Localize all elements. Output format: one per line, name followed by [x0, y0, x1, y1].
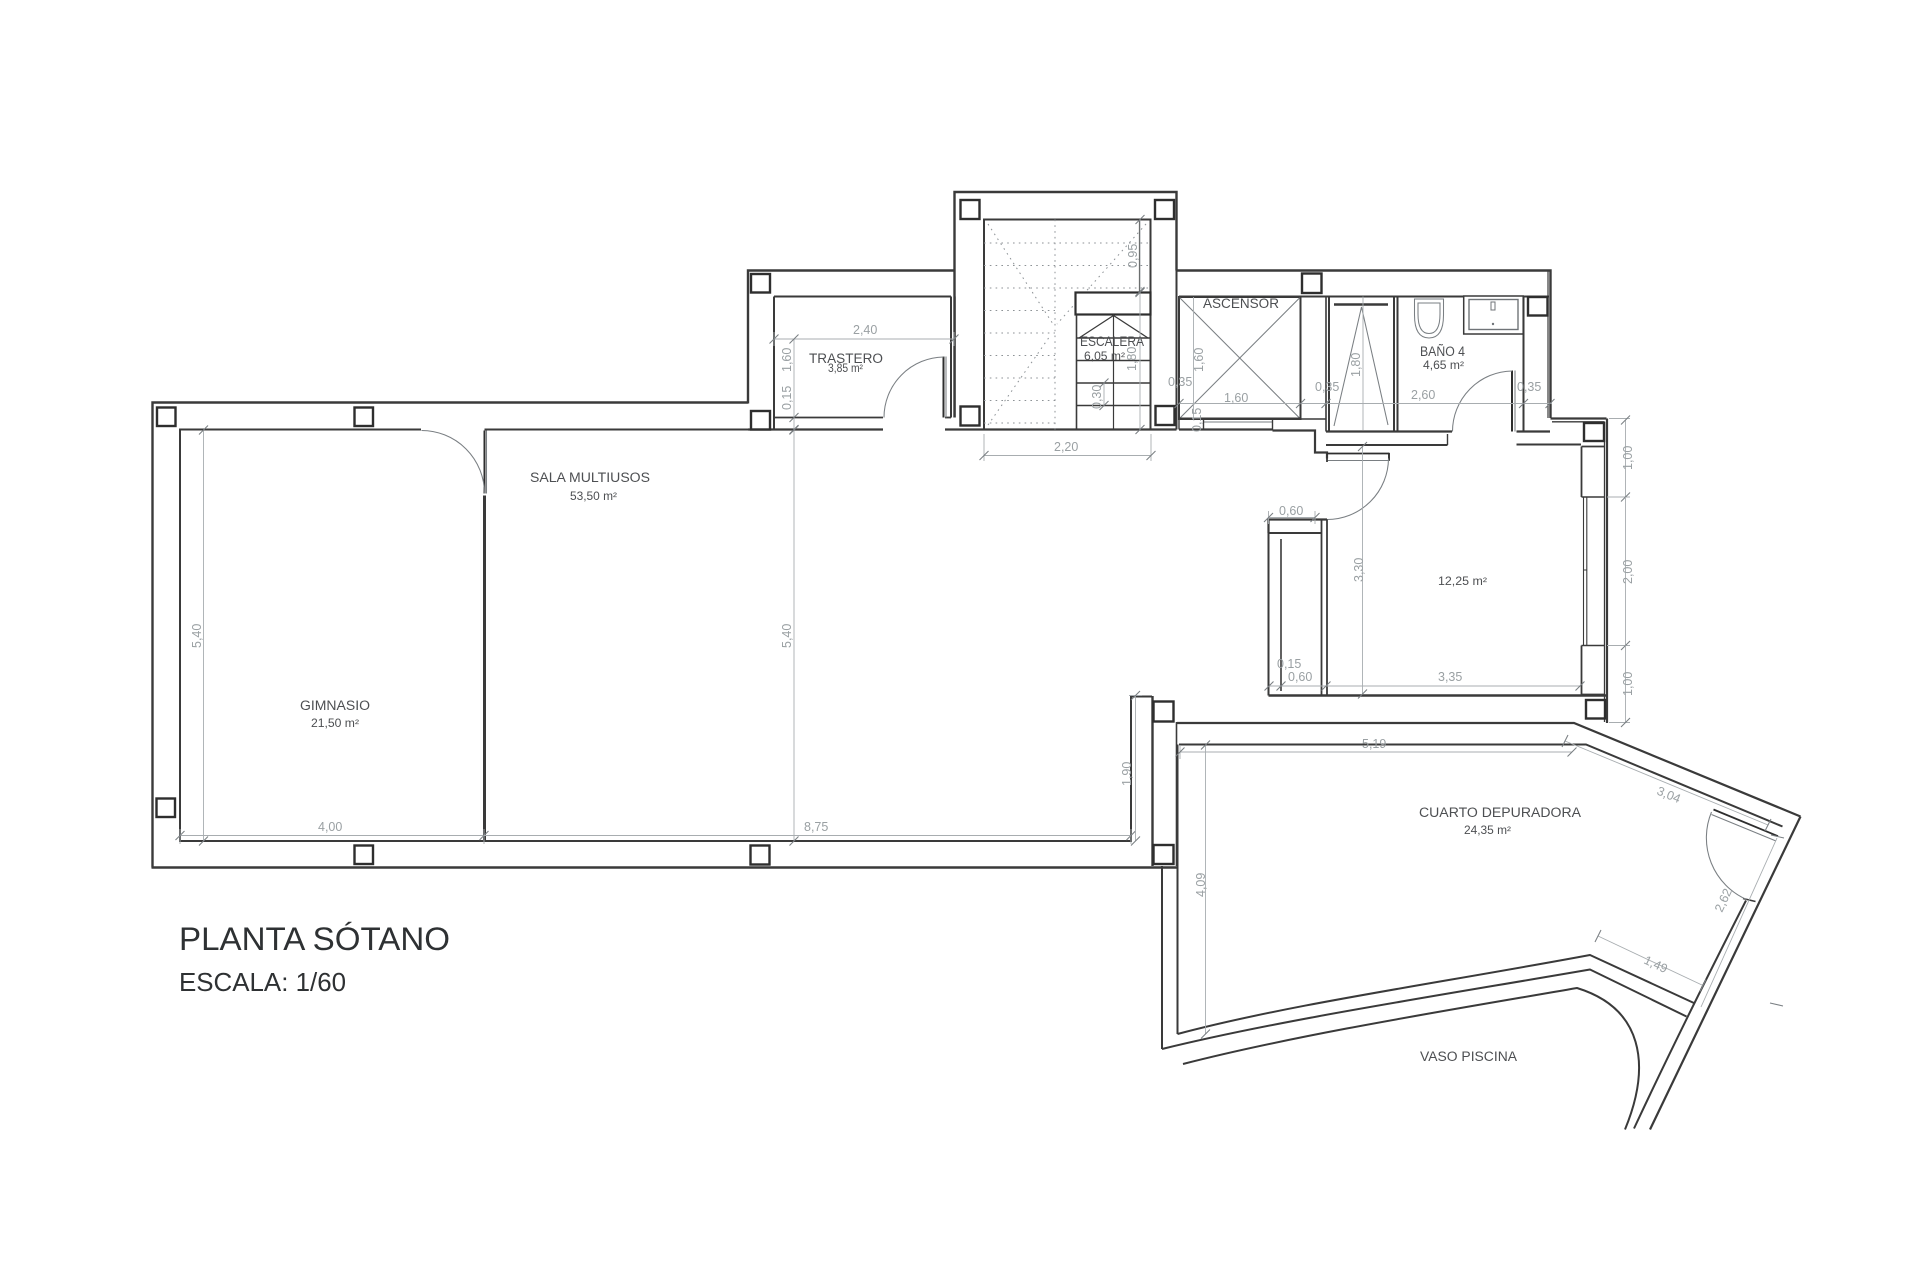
svg-text:SALA MULTIUSOS: SALA MULTIUSOS — [530, 470, 650, 485]
svg-text:2,40: 2,40 — [853, 323, 877, 337]
svg-text:5,40: 5,40 — [190, 624, 204, 648]
svg-text:ESCALA: 1/60: ESCALA: 1/60 — [179, 967, 346, 997]
svg-text:0,35: 0,35 — [1517, 380, 1541, 394]
svg-text:PLANTA SÓTANO: PLANTA SÓTANO — [179, 920, 450, 957]
svg-text:1,80: 1,80 — [1125, 347, 1139, 371]
svg-text:1,80: 1,80 — [1349, 353, 1363, 377]
svg-text:4,65 m²: 4,65 m² — [1423, 360, 1464, 372]
svg-text:1,90: 1,90 — [1120, 762, 1134, 786]
svg-text:8,75: 8,75 — [804, 820, 828, 834]
svg-text:0,35: 0,35 — [1315, 380, 1339, 394]
svg-text:6,05 m²: 6,05 m² — [1084, 351, 1125, 363]
svg-text:0,30: 0,30 — [1090, 385, 1104, 409]
svg-text:53,50 m²: 53,50 m² — [570, 491, 617, 503]
svg-text:5,19: 5,19 — [1362, 737, 1386, 751]
svg-text:4,00: 4,00 — [318, 820, 342, 834]
svg-text:5,40: 5,40 — [780, 624, 794, 648]
svg-text:1,60: 1,60 — [780, 348, 794, 372]
svg-text:GIMNASIO: GIMNASIO — [300, 698, 370, 713]
svg-text:2,20: 2,20 — [1054, 440, 1078, 454]
svg-text:0,15: 0,15 — [1277, 657, 1301, 671]
svg-text:1,60: 1,60 — [1192, 348, 1206, 372]
svg-text:VASO PISCINA: VASO PISCINA — [1420, 1049, 1517, 1064]
svg-text:0,15: 0,15 — [1190, 408, 1204, 432]
svg-text:0,95: 0,95 — [1126, 244, 1140, 268]
svg-text:0,35: 0,35 — [1168, 375, 1192, 389]
svg-text:21,50 m²: 21,50 m² — [311, 718, 359, 730]
svg-text:ASCENSOR: ASCENSOR — [1203, 296, 1279, 311]
svg-text:3,35: 3,35 — [1438, 670, 1462, 684]
svg-text:3,30: 3,30 — [1352, 558, 1366, 582]
svg-text:2,00: 2,00 — [1621, 560, 1635, 584]
svg-text:ESCALERA: ESCALERA — [1080, 334, 1144, 349]
svg-text:0,60: 0,60 — [1288, 670, 1312, 684]
svg-text:1,00: 1,00 — [1621, 446, 1635, 470]
svg-text:0,60: 0,60 — [1279, 504, 1303, 518]
svg-text:2,60: 2,60 — [1411, 388, 1435, 402]
svg-text:1,60: 1,60 — [1224, 391, 1248, 405]
svg-text:1,00: 1,00 — [1621, 672, 1635, 696]
svg-text:24,35 m²: 24,35 m² — [1464, 825, 1511, 837]
svg-text:12,25 m²: 12,25 m² — [1438, 576, 1487, 588]
svg-text:BAÑO 4: BAÑO 4 — [1420, 344, 1465, 359]
svg-text:CUARTO DEPURADORA: CUARTO DEPURADORA — [1419, 805, 1581, 820]
svg-text:3,85 m²: 3,85 m² — [828, 363, 863, 375]
svg-text:4,09: 4,09 — [1194, 873, 1208, 897]
svg-text:0,15: 0,15 — [780, 386, 794, 410]
